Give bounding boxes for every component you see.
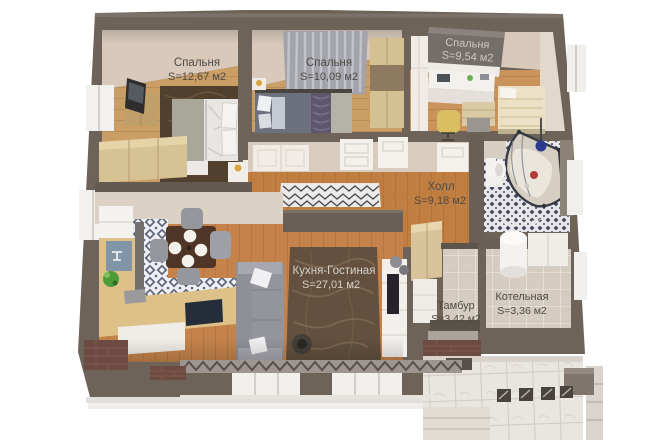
svg-text:Кухня-Гостиная: Кухня-Гостиная [293,265,376,277]
svg-text:Спальня: Спальня [306,57,352,69]
svg-text:S=12,67 м2: S=12,67 м2 [168,71,226,83]
svg-text:S=9,18 м2: S=9,18 м2 [414,195,466,207]
svg-text:Тамбур: Тамбур [437,300,474,312]
svg-text:Холл: Холл [427,181,454,193]
svg-text:S=27,01 м2: S=27,01 м2 [302,279,360,291]
svg-text:S=3,36 м2: S=3,36 м2 [497,305,547,317]
svg-text:S=3,42 м2: S=3,42 м2 [431,313,481,325]
svg-text:S=4,57 м2: S=4,57 м2 [496,218,544,229]
svg-text:S=10,09 м2: S=10,09 м2 [300,71,358,83]
svg-text:Спальня: Спальня [174,57,220,69]
svg-text:С.У.: С.У. [509,203,528,215]
svg-text:Котельная: Котельная [495,291,548,303]
